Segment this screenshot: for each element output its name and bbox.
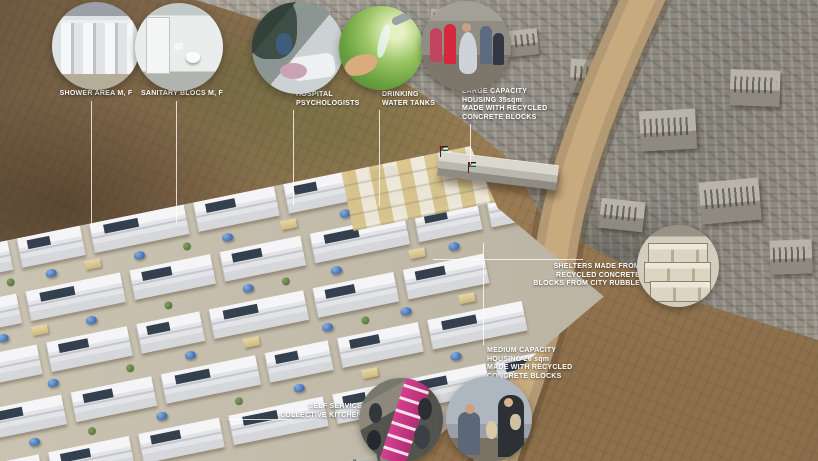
water-splash — [375, 24, 392, 59]
figure — [493, 33, 504, 65]
sink — [174, 43, 183, 50]
shower-cubicles-photo — [52, 2, 140, 90]
tent — [293, 383, 305, 393]
tent — [0, 333, 9, 343]
canopy — [361, 367, 378, 379]
block-row — [644, 262, 712, 283]
hospital-care-photo — [252, 2, 344, 94]
label-line: SANITARY BLOCS M, F — [120, 90, 244, 99]
leader-line-water — [379, 110, 380, 206]
infographic-stage: SHOWER AREA M, F SANITARY BLOCS M, F HOS… — [0, 0, 818, 461]
shower-stalls — [61, 20, 133, 75]
tent — [448, 241, 460, 251]
tree — [6, 278, 15, 287]
label-kitchen: SELF SERVICE COLLECTIVE KITCHEN — [242, 403, 362, 420]
stacked-concrete-blocks-photo — [637, 225, 719, 307]
label-line: SHELTERS MADE FROM — [505, 263, 640, 272]
tent — [242, 283, 254, 293]
label-line: HOUSING 26 sqm — [487, 356, 572, 365]
tree — [164, 301, 173, 310]
canopy — [243, 336, 260, 348]
baby-figure — [486, 421, 497, 439]
diner-figure — [367, 430, 381, 450]
tent — [321, 322, 333, 332]
label-line: MADE WITH RECYCLED — [462, 105, 547, 114]
leader-line-hospital — [293, 110, 294, 206]
label-sanitary: SANITARY BLOCS M, F — [120, 90, 244, 99]
label-line: COLLECTIVE KITCHEN — [242, 412, 362, 421]
palestinian-flag — [468, 162, 469, 173]
canopy — [458, 292, 475, 304]
tree — [87, 426, 96, 435]
tree — [361, 316, 370, 325]
tent — [133, 250, 145, 260]
cabin-door — [146, 17, 171, 74]
tree — [182, 242, 191, 251]
tent — [85, 315, 97, 325]
caregiver-figure — [276, 33, 292, 55]
family-group-photo — [421, 1, 511, 91]
tent — [45, 268, 57, 278]
leader-line-shelter-blocks — [433, 259, 583, 260]
tent — [221, 232, 233, 242]
leader-line-large-housing — [470, 124, 471, 164]
communal-meal-photo — [359, 378, 443, 461]
leader-line-sanitary — [176, 101, 177, 223]
label-line: DRINKING — [382, 91, 435, 100]
block-row — [650, 281, 711, 302]
tent — [47, 378, 59, 388]
canopy — [280, 218, 297, 230]
figure — [459, 32, 477, 74]
tent — [400, 306, 412, 316]
label-hospital: HOSPITAL PSYCHOLOGISTS — [296, 91, 360, 108]
label-line: HOUSING 35sqm — [462, 97, 547, 106]
hands-drinking-water-photo — [339, 6, 423, 90]
label-medium-housing: MEDIUM CAPACITY HOUSING 26 sqm MADE WITH… — [487, 347, 572, 381]
leader-line-shower — [91, 101, 92, 231]
label-line: MADE WITH RECYCLED — [487, 364, 572, 373]
label-large-housing: LARGE CAPACITY HOUSING 35sqm MADE WITH R… — [462, 88, 547, 122]
figure — [480, 26, 492, 64]
tent — [450, 351, 462, 361]
toilet — [186, 52, 200, 63]
tree — [125, 364, 134, 373]
canopy — [31, 324, 48, 336]
figure-head — [462, 23, 471, 32]
parents-with-children-photo — [446, 376, 532, 461]
diner-figure — [414, 425, 430, 449]
canopy — [84, 258, 101, 270]
label-line: PSYCHOLOGISTS — [296, 100, 360, 109]
label-line: MEDIUM CAPACITY — [487, 347, 572, 356]
tree — [281, 277, 290, 286]
tent — [330, 265, 342, 275]
sanitary-cabin-photo — [135, 3, 223, 91]
label-line: BLOCKS FROM CITY RUBBLE — [505, 280, 640, 289]
figure — [430, 28, 442, 62]
label-line: RECYCLED CONCRETE — [505, 272, 640, 281]
tent — [184, 350, 196, 360]
tent — [28, 437, 40, 447]
father-figure — [458, 412, 480, 455]
label-shelter-blocks: SHELTERS MADE FROM RECYCLED CONCRETE BLO… — [505, 263, 640, 289]
label-line: SELF SERVICE — [242, 403, 362, 412]
diner-figure — [418, 398, 432, 420]
diner-figure — [369, 403, 382, 423]
figure — [444, 24, 456, 64]
figure-head — [465, 404, 475, 414]
label-line: WATER TANKS — [382, 100, 435, 109]
palestinian-flag — [440, 146, 441, 157]
label-water: DRINKING WATER TANKS — [382, 91, 435, 108]
block-row — [648, 243, 707, 264]
canopy — [408, 247, 425, 259]
tent — [156, 411, 168, 421]
baby-figure — [510, 414, 521, 430]
label-line: CONCRETE BLOCKS — [462, 114, 547, 123]
